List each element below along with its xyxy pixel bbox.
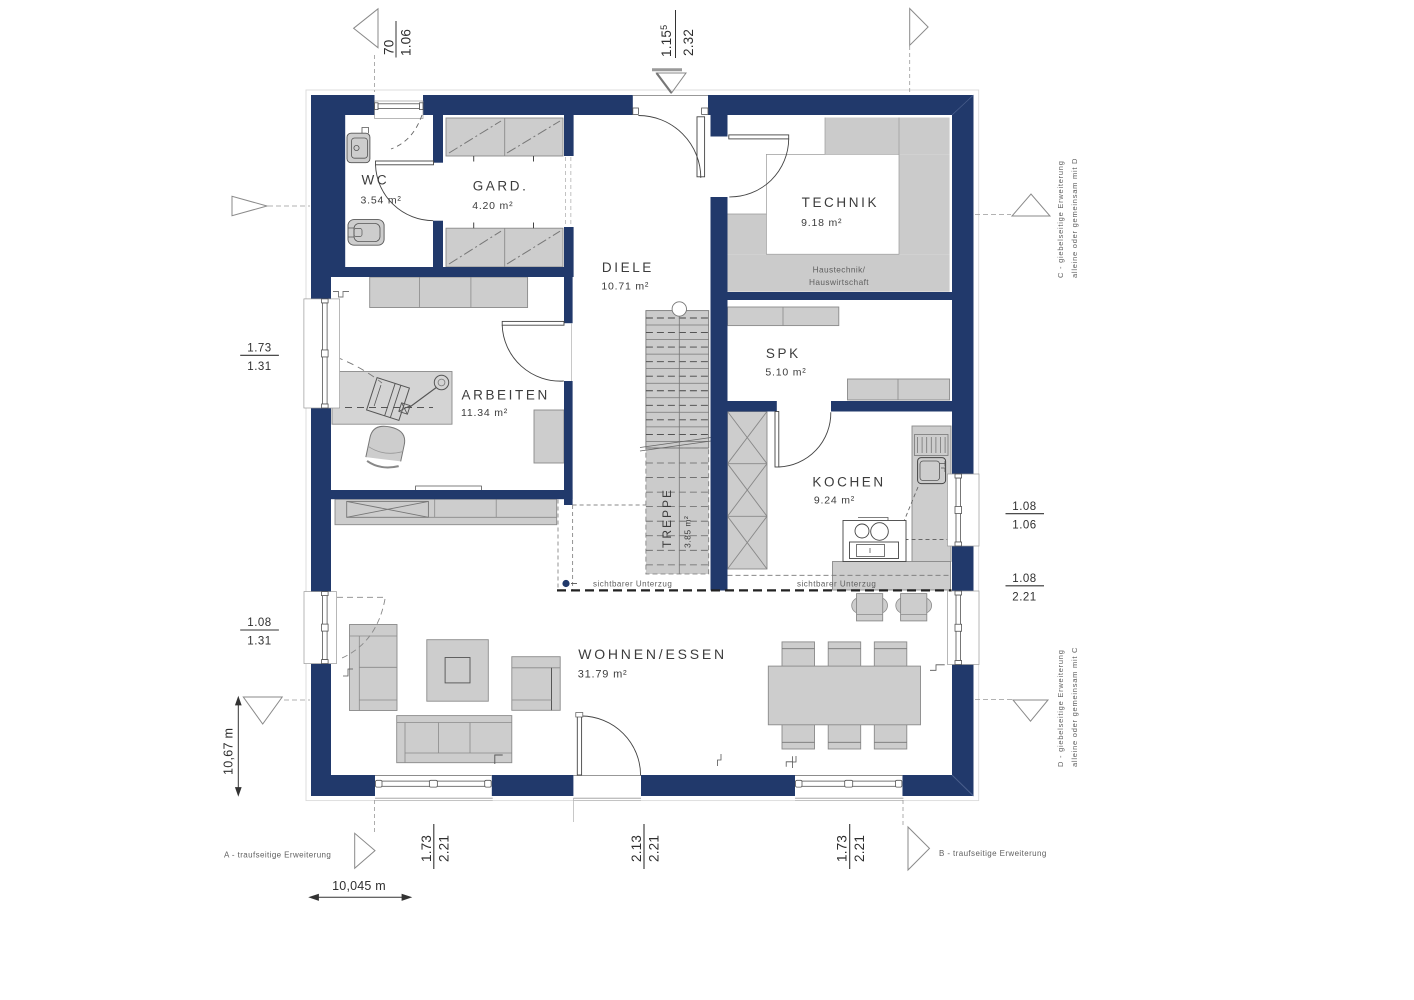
svg-text:alleine oder gemeinsam mit D: alleine oder gemeinsam mit D (1070, 158, 1079, 278)
svg-text:5.10 m²: 5.10 m² (765, 367, 806, 379)
svg-text:A - traufseitige Erweiterung: A - traufseitige Erweiterung (224, 851, 331, 860)
svg-text:10,045 m: 10,045 m (332, 879, 386, 893)
svg-text:1.31: 1.31 (247, 361, 271, 373)
svg-text:2.21: 2.21 (852, 835, 867, 862)
svg-text:alleine oder gemeinsam mit C: alleine oder gemeinsam mit C (1070, 647, 1079, 767)
svg-text:Haustechnik/: Haustechnik/ (813, 265, 866, 275)
svg-text:2.32: 2.32 (681, 29, 696, 56)
svg-text:31.79 m²: 31.79 m² (578, 669, 628, 681)
svg-text:sichtbarer Unterzug: sichtbarer Unterzug (593, 580, 672, 589)
svg-text:D - giebelseitige Erweiterung: D - giebelseitige Erweiterung (1056, 649, 1065, 767)
svg-text:3.85 m²: 3.85 m² (683, 516, 693, 548)
svg-text:SPK: SPK (766, 346, 801, 361)
svg-text:1.73: 1.73 (247, 343, 271, 355)
svg-text:10.71 m²: 10.71 m² (601, 281, 649, 293)
svg-text:10,67 m: 10,67 m (222, 728, 236, 775)
svg-text:1.06: 1.06 (399, 29, 414, 56)
svg-text:1.06: 1.06 (1012, 519, 1036, 531)
svg-text:TECHNIK: TECHNIK (802, 195, 879, 210)
svg-text:3.54 m²: 3.54 m² (361, 195, 402, 207)
svg-text:TREPPE: TREPPE (660, 488, 674, 548)
svg-text:C - giebelseitige Erweiterung: C - giebelseitige Erweiterung (1056, 160, 1065, 278)
svg-text:WOHNEN/ESSEN: WOHNEN/ESSEN (578, 646, 727, 662)
svg-text:DIELE: DIELE (602, 260, 654, 275)
svg-text:1.73: 1.73 (419, 835, 434, 862)
svg-text:ARBEITEN: ARBEITEN (462, 388, 550, 403)
svg-text:2.21: 2.21 (1012, 591, 1036, 603)
svg-text:KOCHEN: KOCHEN (812, 475, 885, 490)
svg-text:9.18 m²: 9.18 m² (801, 217, 842, 229)
svg-text:2.13: 2.13 (629, 835, 644, 862)
svg-text:1.08: 1.08 (1012, 573, 1036, 585)
svg-text:1.08: 1.08 (247, 617, 271, 629)
svg-text:11.34 m²: 11.34 m² (461, 407, 508, 419)
svg-text:70: 70 (382, 40, 397, 55)
svg-text:Hauswirtschaft: Hauswirtschaft (809, 277, 869, 287)
svg-text:B - traufseitige Erweiterung: B - traufseitige Erweiterung (939, 849, 1047, 858)
svg-text:1.08: 1.08 (1012, 501, 1036, 513)
svg-text:GARD.: GARD. (473, 179, 529, 194)
svg-text:1.31: 1.31 (247, 636, 271, 648)
svg-text:2.21: 2.21 (647, 835, 662, 862)
svg-text:1.73: 1.73 (835, 835, 850, 862)
svg-text:sichtbarer Unterzug: sichtbarer Unterzug (797, 580, 876, 589)
svg-text:2.21: 2.21 (436, 835, 451, 862)
svg-text:WC: WC (362, 173, 390, 188)
svg-text:9.24 m²: 9.24 m² (814, 495, 855, 507)
svg-text:4.20 m²: 4.20 m² (472, 200, 513, 212)
